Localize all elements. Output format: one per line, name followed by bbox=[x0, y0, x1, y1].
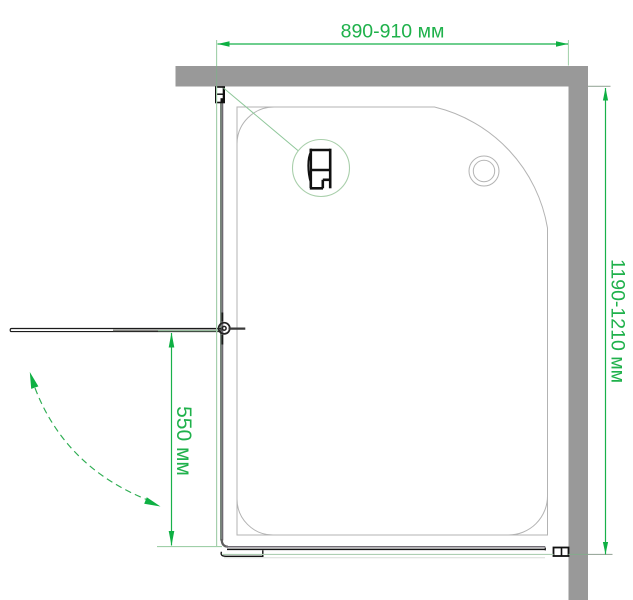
svg-text:890-910 мм: 890-910 мм bbox=[341, 21, 445, 43]
svg-text:1190-1210 мм: 1190-1210 мм bbox=[607, 259, 629, 383]
svg-text:550 мм: 550 мм bbox=[172, 406, 195, 476]
